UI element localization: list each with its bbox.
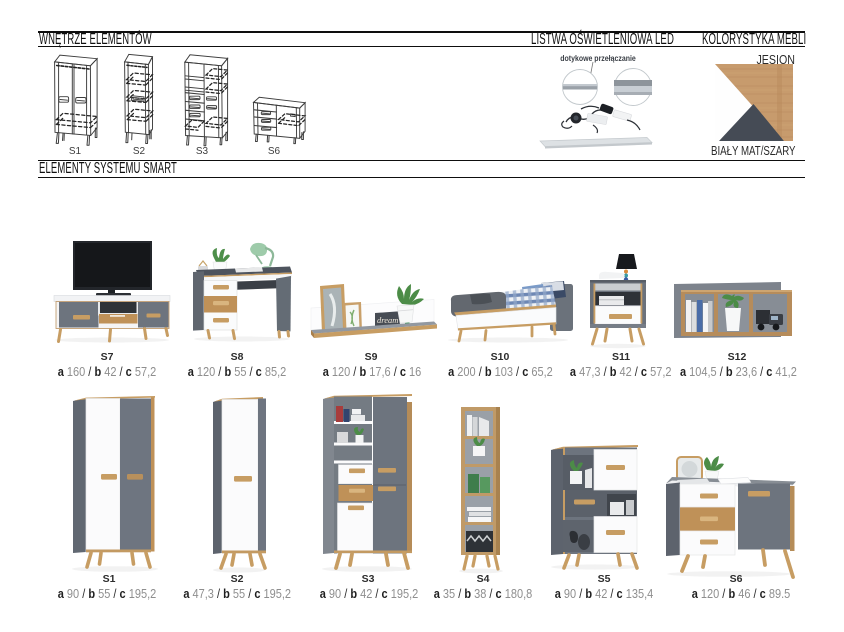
svg-text:dream: dream [377,315,398,325]
